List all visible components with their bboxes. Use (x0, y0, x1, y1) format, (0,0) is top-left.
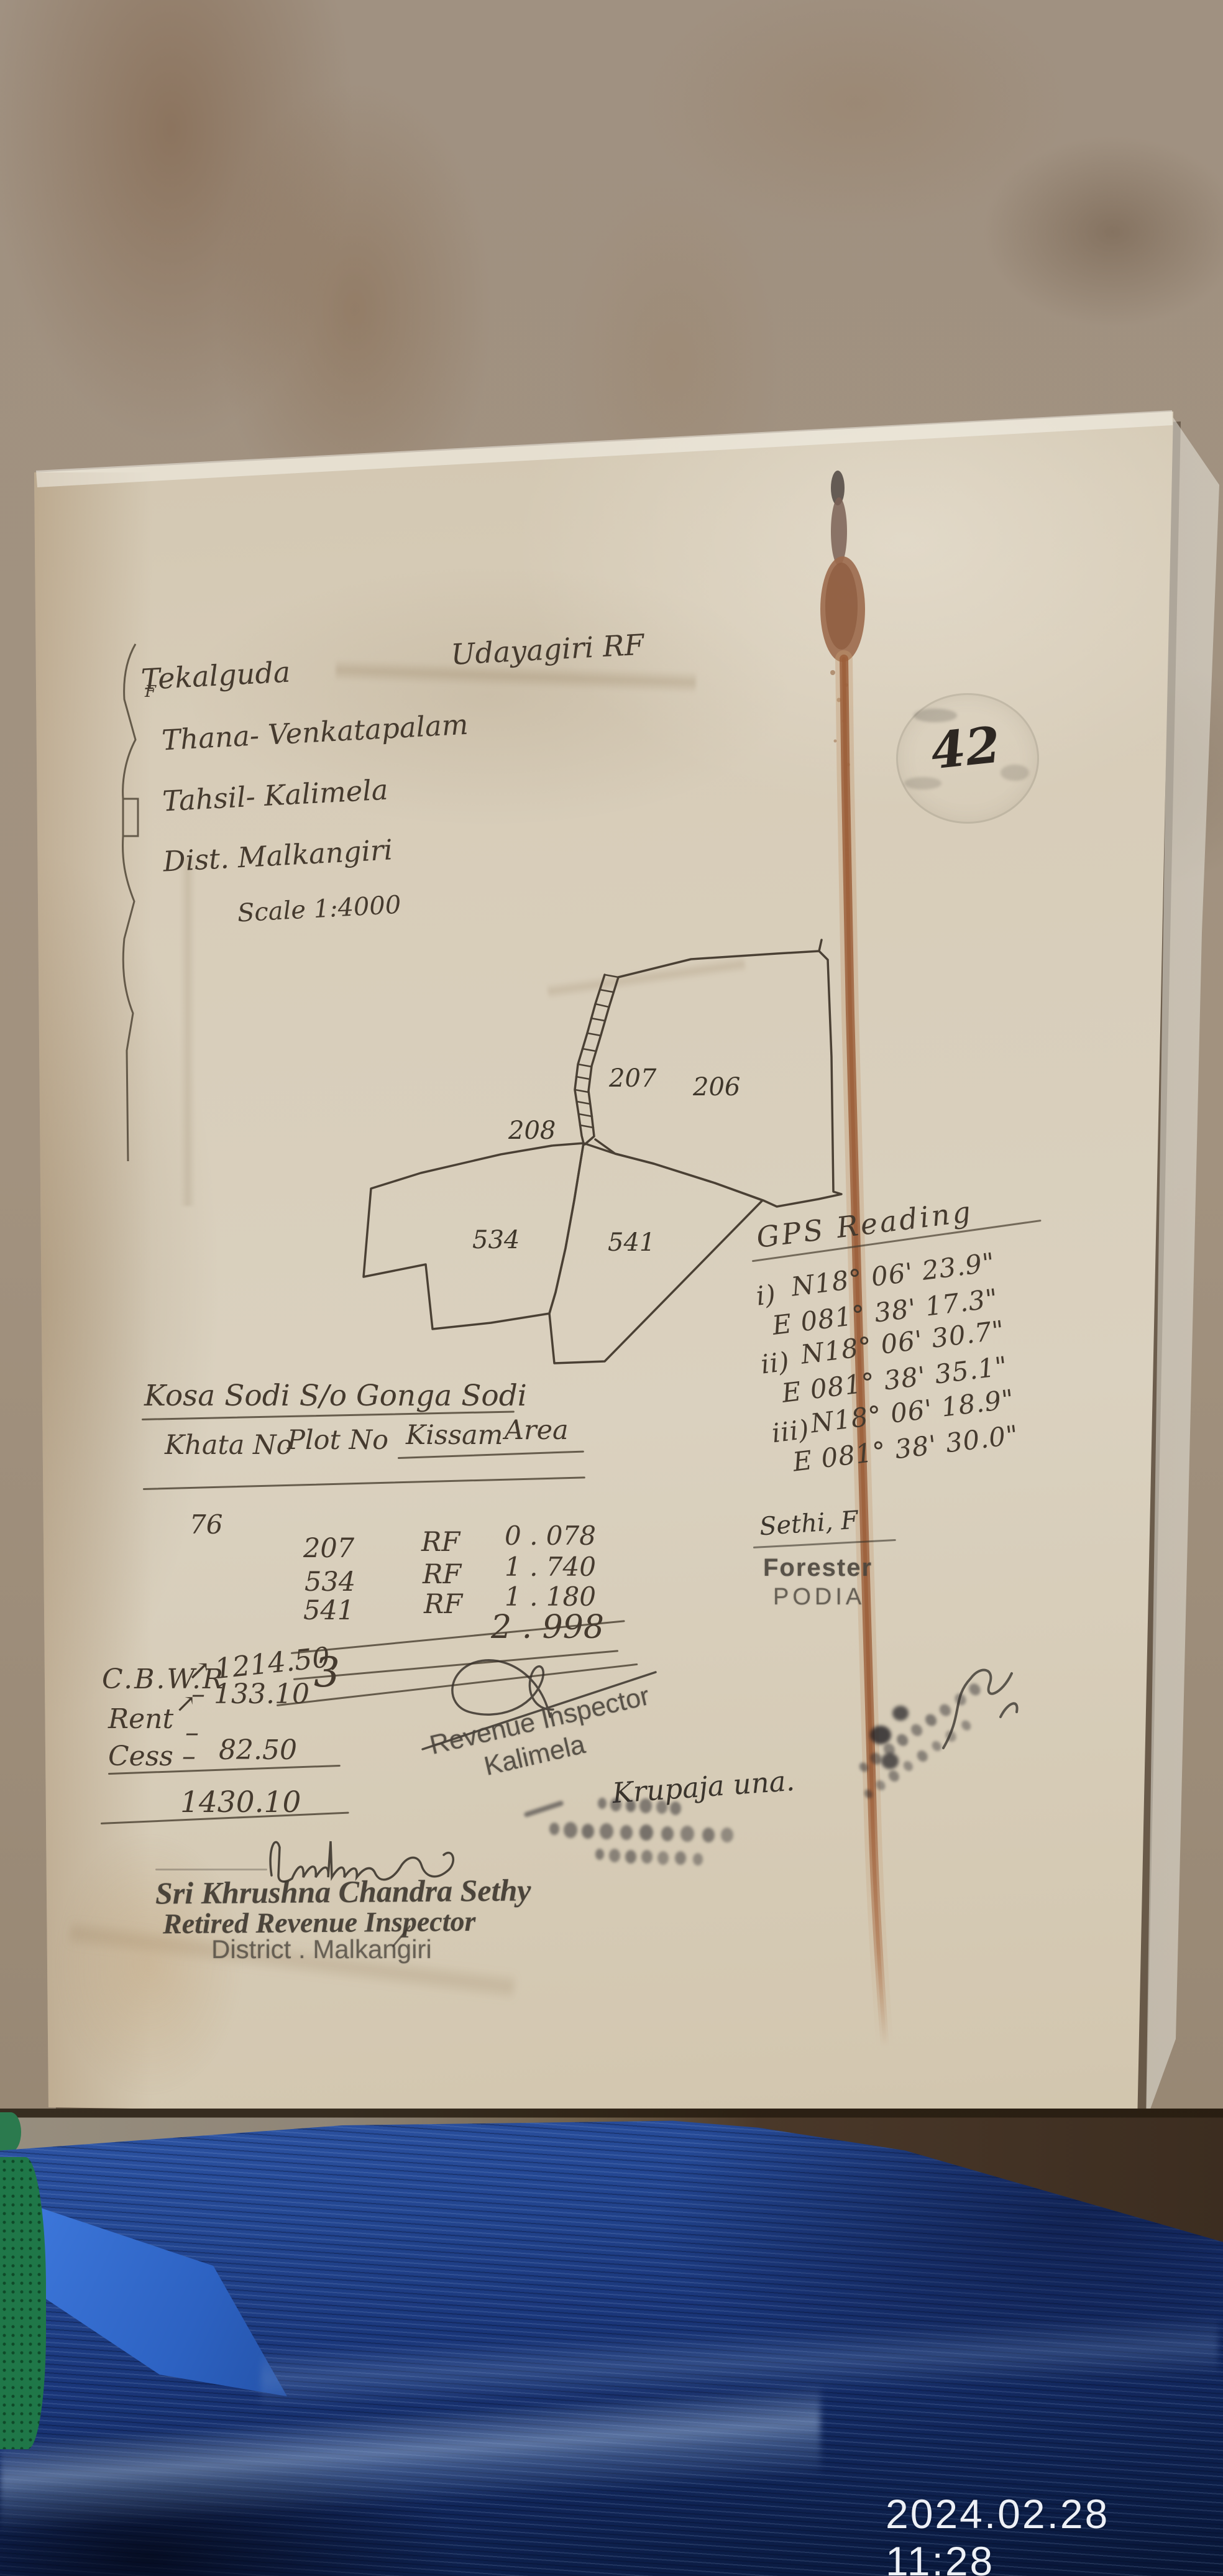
table-header-area: Area (505, 1415, 569, 1446)
row-207-area: 0 . 078 (505, 1520, 596, 1551)
faint-strike (155, 1869, 267, 1870)
ink-smudge-row (549, 1823, 559, 1835)
ink-blot (881, 1753, 899, 1769)
forester-stamp-title: Forester (763, 1554, 873, 1582)
plot-541-outline (549, 1143, 763, 1363)
row-534-area: 1 . 740 (505, 1552, 596, 1582)
header-underline-long (143, 1476, 585, 1490)
margin-bracket (113, 640, 163, 1169)
header-thana: Thana- Venkatapalam (161, 708, 469, 757)
ladder-strip-left (575, 975, 605, 1143)
green-net-fragment (0, 2112, 21, 2152)
map-label-541: 541 (608, 1228, 655, 1257)
ink-blot (892, 1706, 909, 1721)
page-number: 42 (928, 715, 1003, 780)
cess-label: Cess – (108, 1741, 196, 1772)
rent-label: Rent (108, 1703, 173, 1735)
stamp-smudge (1001, 765, 1029, 781)
row-207-plot: 207 (303, 1533, 354, 1564)
row-541-kissam: RF (424, 1589, 462, 1620)
ink-dash-smudge (523, 1800, 564, 1818)
table-header-kissam: Kissam (406, 1420, 503, 1451)
diagonal-signature-flourish (926, 1655, 1032, 1760)
forester-stamp-place: PODIA (773, 1584, 865, 1611)
up-arrow-icon: ↗ (175, 1690, 196, 1718)
header-village: Tekalguda (140, 655, 291, 697)
map-label-206: 206 (692, 1073, 740, 1102)
row-207-kissam: RF (421, 1527, 460, 1558)
table-header-khata: Khata No (165, 1430, 293, 1461)
corner-tick (819, 940, 822, 951)
row-541-area: 1 . 180 (505, 1581, 596, 1612)
ink-smudge-row (595, 1849, 604, 1860)
cadastral-map: 207 206 208 534 541 (348, 932, 858, 1374)
row-534-kissam: RF (423, 1559, 461, 1590)
photo-scene: Tekalguda Udayagiri RF Thana- Venkatapal… (0, 0, 1223, 2576)
map-label-208: 208 (508, 1116, 556, 1145)
header-forest: Udayagiri RF (450, 628, 644, 671)
header-district: Dist. Malkangiri (162, 833, 393, 878)
ladder-strip-right (585, 977, 618, 1144)
paper-crease (180, 858, 195, 1206)
cess-amount: 82.50 (219, 1734, 297, 1766)
owner-line: Kosa Sodi S/o Gonga Sodi (144, 1379, 527, 1413)
cbwr-amount: – 133.10 (191, 1678, 309, 1710)
map-label-534: 534 (472, 1226, 520, 1254)
green-net (0, 2157, 46, 2449)
map-header-block: Tekalguda Udayagiri RF Thana- Venkatapal… (140, 630, 761, 663)
gps-idx-3: iii) (770, 1414, 811, 1448)
map-label-207: 207 (608, 1064, 657, 1093)
khata-number: 76 (190, 1509, 222, 1540)
handwritten-note: Krupaja una. (611, 1764, 796, 1810)
ink-blot (870, 1726, 891, 1744)
ink-smudge-row (598, 1798, 607, 1809)
gps-idx-1: i) (754, 1279, 778, 1312)
header-underline-short (398, 1451, 584, 1459)
header-tahsil: Tahsil- Kalimela (162, 773, 389, 818)
gps-idx-2: ii) (759, 1346, 791, 1379)
camera-timestamp: 2024.02.28 11:28 (886, 2490, 1223, 2576)
table-header-plot: Plot No (287, 1425, 388, 1456)
row-541-plot: 541 (303, 1595, 354, 1626)
header-scale: Scale 1:4000 (237, 891, 402, 928)
row-534-plot: 534 (305, 1566, 355, 1598)
